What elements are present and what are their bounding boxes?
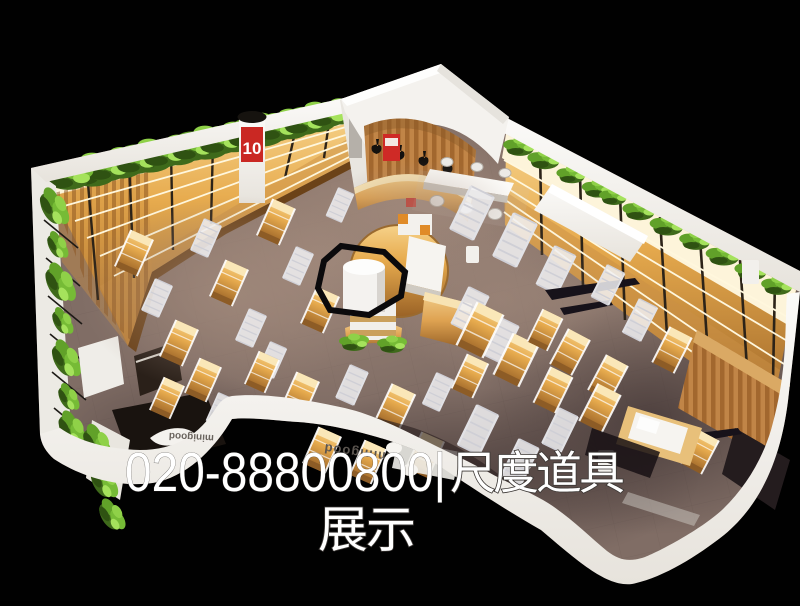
svg-text:10: 10 — [243, 139, 262, 158]
svg-text:020-88800800|: 020-88800800| — [125, 441, 446, 503]
